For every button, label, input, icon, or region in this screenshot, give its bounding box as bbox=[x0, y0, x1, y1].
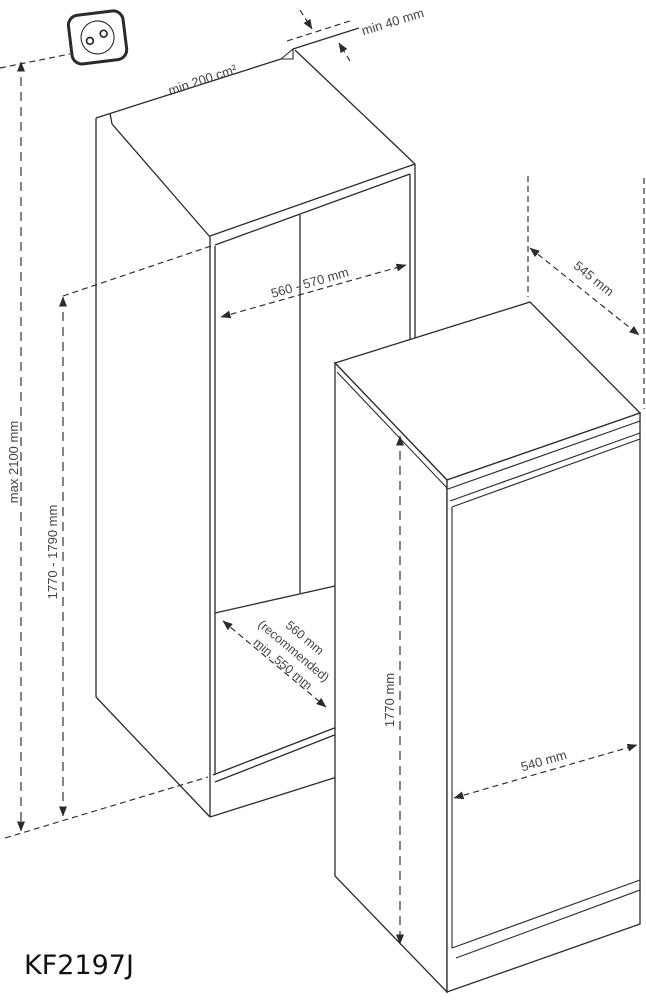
appliance-drawing bbox=[335, 302, 640, 992]
rear-top-clearance-label: min 40 mm bbox=[360, 5, 426, 38]
dim-niche-depth: 560 mm (recommended) min. 550 mm bbox=[223, 604, 343, 707]
appliance-height-label: 1770 mm bbox=[382, 673, 397, 727]
niche-height-label: 1770 - 1790 mm bbox=[45, 505, 60, 600]
niche-width-label: 560 - 570 mm bbox=[269, 264, 350, 301]
appliance-front-face bbox=[447, 413, 640, 992]
installation-diagram: min 200 cm² min 40 mm max 2100 mm 1770 -… bbox=[0, 0, 646, 1000]
vent-slot-icon bbox=[281, 49, 293, 59]
dim-overall-height-max: max 2100 mm bbox=[6, 62, 21, 831]
dim-niche-height: 1770 - 1790 mm bbox=[45, 245, 214, 816]
floor-reference-line bbox=[5, 777, 208, 838]
dim-rear-top-clearance: min 40 mm bbox=[287, 5, 426, 61]
niche-floor-edge bbox=[215, 586, 335, 613]
dim-vent-area: min 200 cm² bbox=[166, 61, 239, 98]
appliance-depth-label: 545 mm bbox=[571, 258, 617, 299]
dim-niche-width: 560 - 570 mm bbox=[221, 264, 406, 317]
model-number: KF2197J bbox=[24, 950, 134, 981]
vent-area-label: min 200 cm² bbox=[166, 61, 239, 98]
socket-extension-line bbox=[0, 54, 70, 68]
diagram-canvas: min 200 cm² min 40 mm max 2100 mm 1770 -… bbox=[0, 0, 646, 1000]
power-outlet-icon bbox=[67, 10, 128, 65]
overall-height-max-label: max 2100 mm bbox=[6, 421, 21, 503]
